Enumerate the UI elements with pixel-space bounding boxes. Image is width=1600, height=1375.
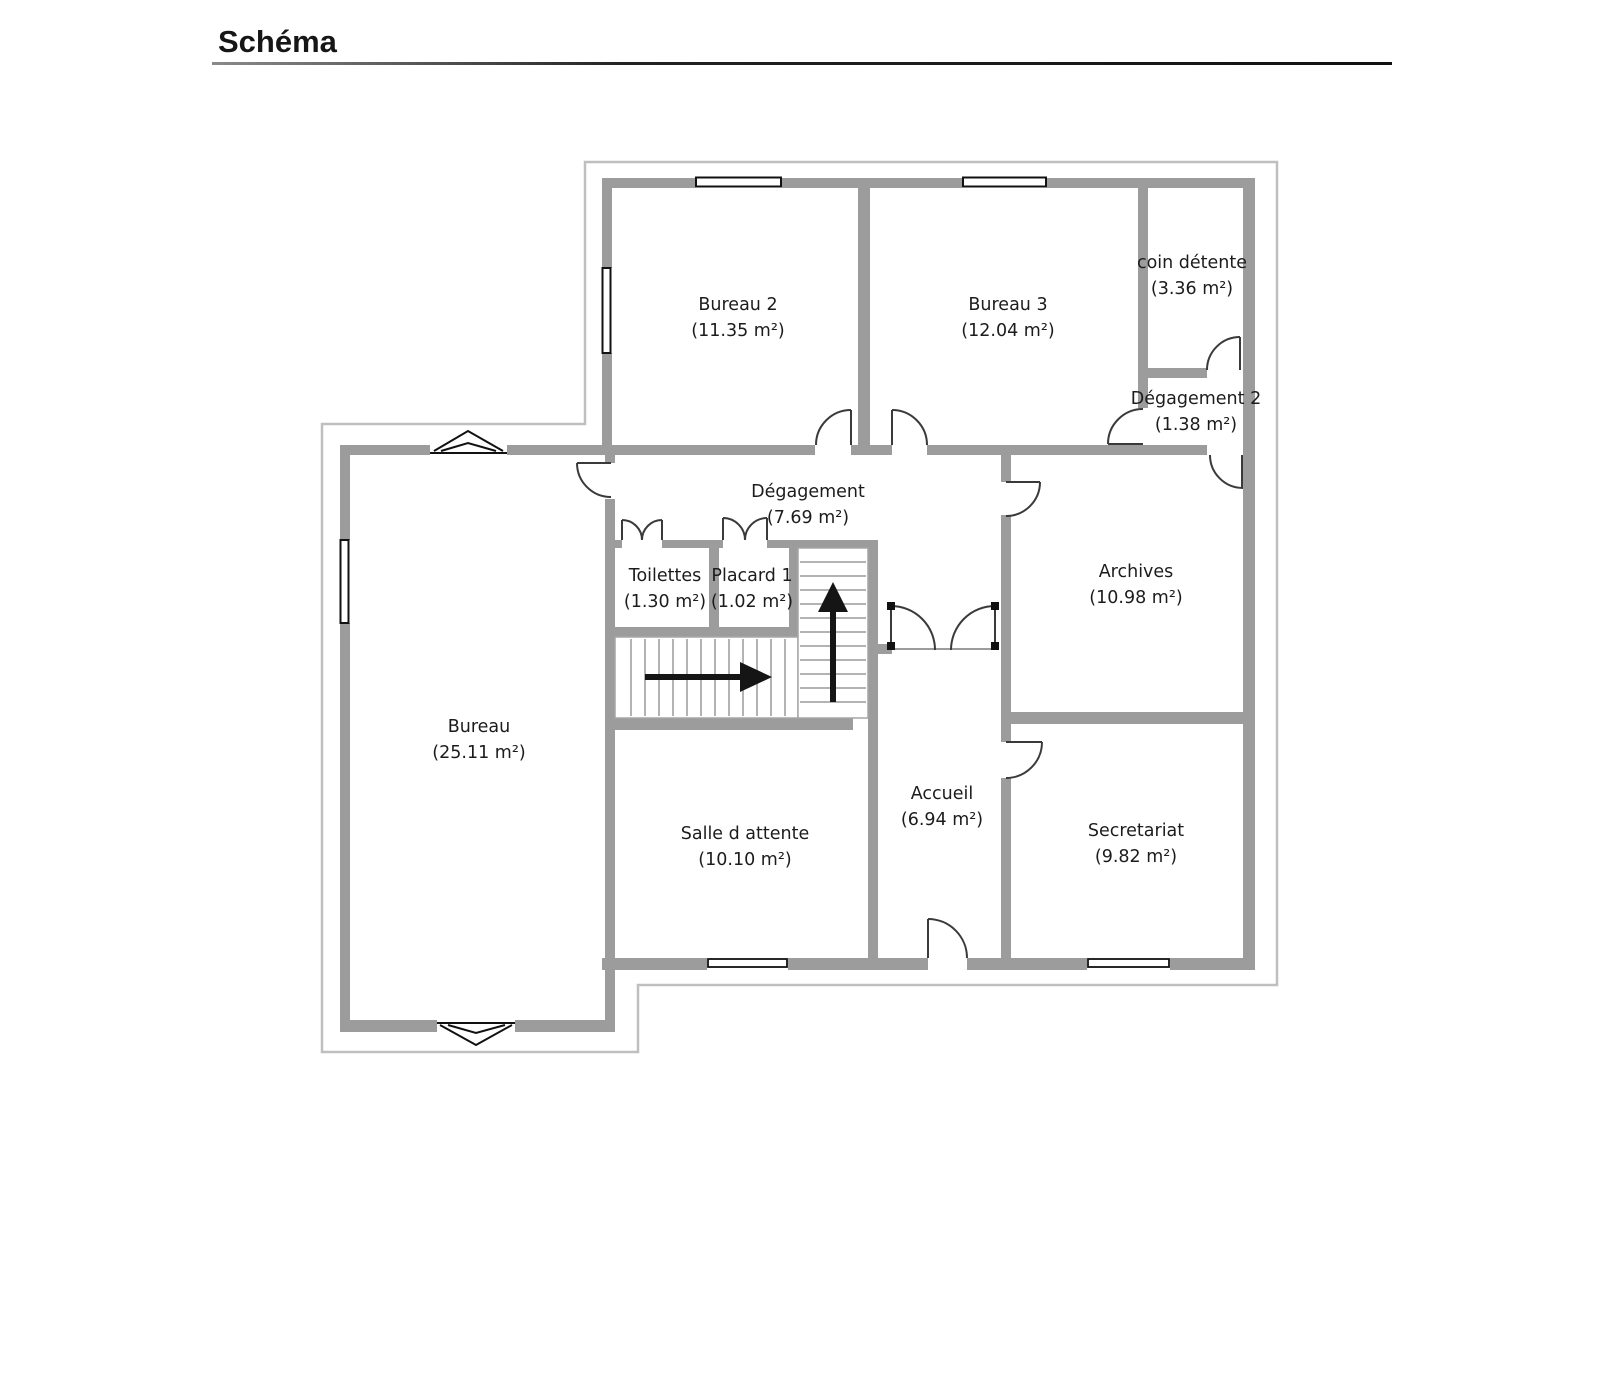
room-name: Archives — [1099, 562, 1174, 582]
window-bureau3-top — [963, 178, 1046, 187]
room-label-accueil: Accueil (6.94 m²) — [901, 781, 983, 833]
room-area: (3.36 m²) — [1137, 276, 1247, 302]
room-label-salle-d-attente: Salle d attente (10.10 m²) — [681, 821, 810, 873]
room-area: (12.04 m²) — [961, 318, 1054, 344]
floor-plan-drawing — [0, 0, 1600, 1375]
window-bureau-top-symbol — [430, 431, 507, 455]
room-area: (25.11 m²) — [432, 740, 525, 766]
door-bureau2 — [816, 410, 851, 445]
door-archives — [1006, 482, 1040, 516]
window-secretariat-bottom — [1088, 959, 1169, 967]
door-accueil-bottom — [928, 919, 967, 958]
room-area: (10.10 m²) — [681, 847, 810, 873]
room-name: Dégagement — [751, 482, 865, 502]
room-name: Bureau 2 — [698, 295, 777, 315]
room-area: (10.98 m²) — [1089, 585, 1182, 611]
room-name: Salle d attente — [681, 824, 810, 844]
floor-plan-page: Schéma — [0, 0, 1600, 1375]
room-area: (7.69 m²) — [751, 505, 865, 531]
door-degagement2-archives — [1210, 455, 1243, 488]
room-name: Bureau — [448, 717, 511, 737]
room-area: (1.30 m²) — [624, 589, 706, 615]
room-area: (1.02 m²) — [711, 589, 793, 615]
door-bureau — [577, 463, 611, 497]
door-secretariat — [1006, 742, 1042, 778]
room-area: (6.94 m²) — [901, 807, 983, 833]
room-area: (1.38 m²) — [1131, 412, 1261, 438]
room-area: (11.35 m²) — [691, 318, 784, 344]
room-label-degagement: Dégagement (7.69 m²) — [751, 479, 865, 531]
room-label-bureau-3: Bureau 3 (12.04 m²) — [961, 292, 1054, 344]
room-name: coin détente — [1137, 253, 1247, 273]
room-label-bureau-2: Bureau 2 (11.35 m²) — [691, 292, 784, 344]
room-label-archives: Archives (10.98 m²) — [1089, 559, 1182, 611]
room-label-toilettes: Toilettes (1.30 m²) — [624, 563, 706, 615]
room-name: Secretariat — [1088, 821, 1184, 841]
window-bureau2-top — [696, 178, 781, 187]
room-name: Placard 1 — [711, 566, 792, 586]
door-bureau3 — [892, 410, 927, 445]
room-name: Dégagement 2 — [1131, 389, 1261, 409]
room-label-secretariat: Secretariat (9.82 m²) — [1088, 818, 1184, 870]
window-bureau-bottom-symbol — [437, 1020, 515, 1045]
door-coin-detente — [1207, 337, 1240, 370]
room-label-bureau: Bureau (25.11 m²) — [432, 714, 525, 766]
room-label-coin-detente: coin détente (3.36 m²) — [1137, 250, 1247, 302]
room-name: Accueil — [911, 784, 974, 804]
window-bureau2-left — [603, 268, 611, 353]
door-toilettes — [622, 520, 662, 540]
room-name: Toilettes — [629, 566, 702, 586]
room-name: Bureau 3 — [968, 295, 1047, 315]
double-door-accueil — [887, 602, 999, 650]
window-salle-bottom — [708, 959, 787, 967]
room-label-placard-1: Placard 1 (1.02 m²) — [711, 563, 793, 615]
room-area: (9.82 m²) — [1088, 844, 1184, 870]
window-bureau-left — [341, 540, 349, 623]
room-label-degagement-2: Dégagement 2 (1.38 m²) — [1131, 386, 1261, 438]
